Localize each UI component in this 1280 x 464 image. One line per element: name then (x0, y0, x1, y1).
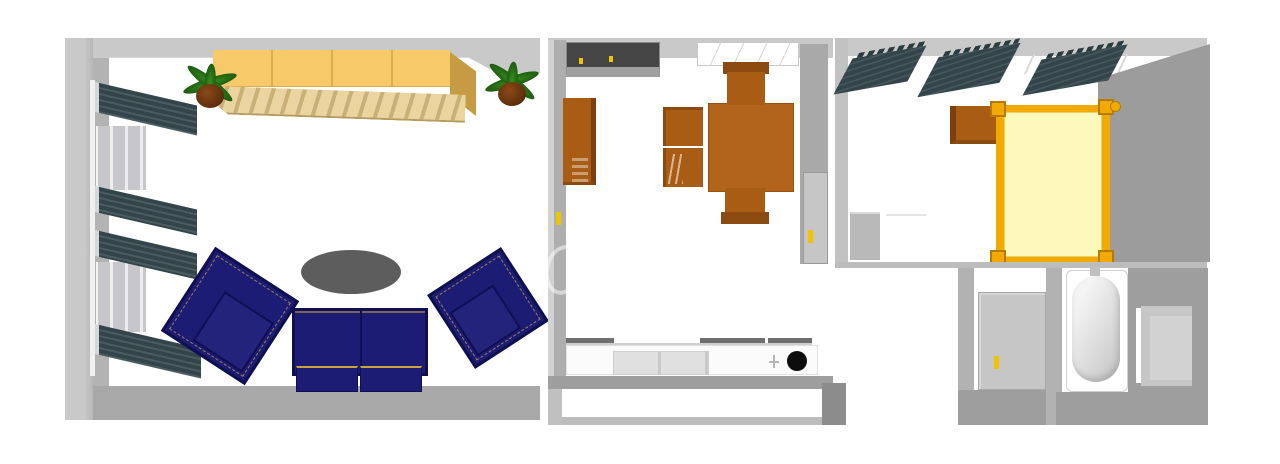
kitchen-side-door (803, 172, 828, 264)
entry-door (566, 42, 660, 77)
bed-post (990, 101, 1006, 117)
double-bed-mattress (1004, 112, 1102, 257)
living-room-window-2 (96, 262, 146, 332)
sofa-seat-cushion-1 (296, 366, 358, 392)
floor-plan-render (0, 0, 1280, 464)
living-room-left-wall (65, 38, 93, 420)
potted-plant-right (482, 60, 542, 110)
small-dresser (850, 212, 880, 260)
bathtub-faucet-icon (1090, 268, 1100, 276)
armchair-right (427, 247, 549, 369)
door-handle-icon (808, 230, 813, 243)
dining-chair-left-2 (663, 148, 703, 187)
floor-line (886, 214, 926, 216)
plant-pot (498, 82, 526, 106)
dining-chair-bottom (725, 188, 765, 214)
armchair-seat-cushion (193, 292, 274, 373)
chair-slats (668, 154, 683, 184)
wardrobe-top-face (213, 50, 450, 87)
shower-tray-inner (1150, 316, 1192, 380)
door-handle-icon (556, 212, 561, 225)
closet-door (978, 292, 1046, 390)
balcony-railing (562, 417, 824, 425)
dining-table (708, 103, 794, 192)
bed-post-knob (1110, 101, 1121, 112)
kitchen-cabinet-fronts (613, 351, 709, 375)
watermark-marks (572, 158, 588, 184)
living-room-window-1 (96, 126, 146, 190)
bathroom-bottom-wall (1056, 392, 1208, 425)
radiator-2 (95, 186, 197, 236)
dining-chair-top (727, 72, 765, 105)
coffee-table-oval (301, 250, 401, 294)
dining-chair-left-1 (663, 107, 703, 146)
plant-pot (196, 84, 224, 108)
balcony-floor (562, 389, 824, 417)
door-handle-icon (994, 356, 999, 369)
sofa-seat-cushion-2 (360, 366, 422, 392)
sink (787, 351, 807, 371)
faucet-icon (769, 355, 779, 368)
bedroom-right-wall (1098, 44, 1210, 262)
balcony-corner-wall (822, 383, 846, 425)
door-handle-icon (579, 58, 583, 64)
door-handle-icon (609, 56, 613, 62)
potted-plant-left (180, 62, 240, 112)
kitchen-bottom-wall (548, 376, 833, 389)
closet-bottom-wall (958, 390, 1056, 425)
dining-chair-bottom-back (721, 212, 769, 224)
balcony-left-wall (548, 389, 562, 425)
wardrobe-slat-front (213, 86, 466, 123)
armchair-seat-cushion (450, 285, 521, 356)
bathtub-basin (1072, 276, 1120, 382)
